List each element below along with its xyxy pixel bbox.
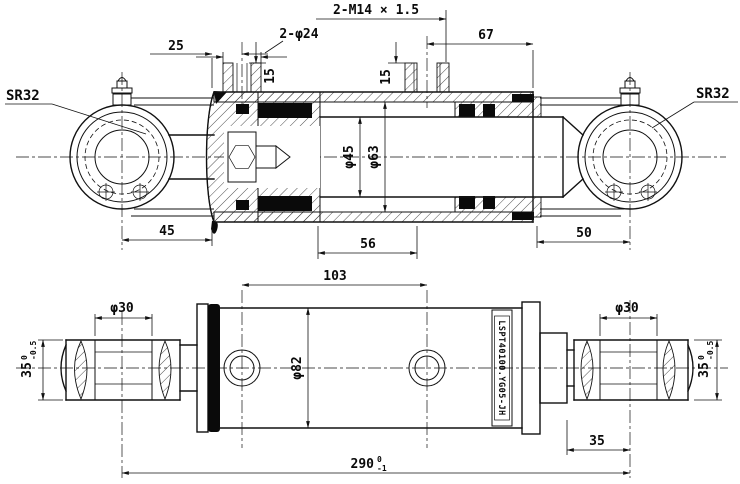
dim-2m14-label: 2-M14 × 1.5 [333, 3, 419, 18]
engineering-drawing-canvas: 25 2-φ24 15 15 2-M14 × 1.5 67 [0, 0, 740, 484]
dim-phi82-label: φ82 [290, 356, 305, 379]
nameplate-text: LSPT40100.YG05-JH [496, 320, 506, 416]
dim-eye-width-left: 35 0 -0.5 [20, 341, 38, 378]
svg-text:290: 290 [351, 457, 375, 472]
svg-text:35: 35 [20, 362, 35, 378]
dim-phi45-label: φ45 [342, 145, 357, 168]
dim-103-label: 103 [323, 269, 346, 284]
dim-67-label: 67 [478, 28, 494, 43]
dim-15-left-label: 15 [263, 68, 278, 84]
lower-right-end [522, 300, 693, 478]
weld-band [208, 304, 220, 432]
lower-left-eye [61, 304, 220, 478]
dim-phi63-label: φ63 [367, 145, 382, 168]
svg-text:0: 0 [20, 355, 29, 360]
dim-15-right-label: 15 [379, 69, 394, 85]
left-rod-eye [70, 72, 214, 250]
piston-seal-top [258, 103, 312, 118]
dim-35-label: 35 [589, 434, 605, 449]
svg-text:-1: -1 [377, 464, 387, 473]
svg-text:0: 0 [697, 355, 706, 360]
dim-45-label: 45 [159, 224, 175, 239]
dim-eye-width-right: 35 0 -0.5 [697, 341, 715, 378]
dim-2phi24-label: 2-φ24 [279, 27, 318, 42]
dim-phi30-right-label: φ30 [615, 301, 639, 316]
piston-seal-bottom [258, 196, 312, 211]
dim-overall-length: 290 0 -1 [351, 455, 387, 473]
sr32-left-label: SR32 [6, 88, 40, 104]
dim-25-label: 25 [168, 39, 184, 54]
dim-phi30-left-label: φ30 [110, 301, 134, 316]
dim-50-label: 50 [576, 226, 592, 241]
lower-outside-view: LSPT40100.YG05-JH [16, 269, 728, 478]
hydraulic-cylinder-drawing: 25 2-φ24 15 15 2-M14 × 1.5 67 [0, 0, 740, 484]
svg-text:-0.5: -0.5 [29, 341, 38, 360]
lower-dimensions: φ30 35 0 -0.5 103 φ82 φ30 [20, 269, 722, 473]
svg-text:35: 35 [697, 362, 712, 378]
dim-56-label: 56 [360, 237, 376, 252]
cylinder-section [207, 91, 584, 234]
right-rod-eye [540, 72, 682, 250]
upper-section-view: 25 2-φ24 15 15 2-M14 × 1.5 67 [5, 3, 738, 259]
svg-text:-0.5: -0.5 [706, 341, 715, 360]
lower-tube: LSPT40100.YG05-JH [220, 290, 522, 448]
svg-text:0: 0 [377, 455, 382, 464]
sr32-right-label: SR32 [696, 86, 730, 102]
